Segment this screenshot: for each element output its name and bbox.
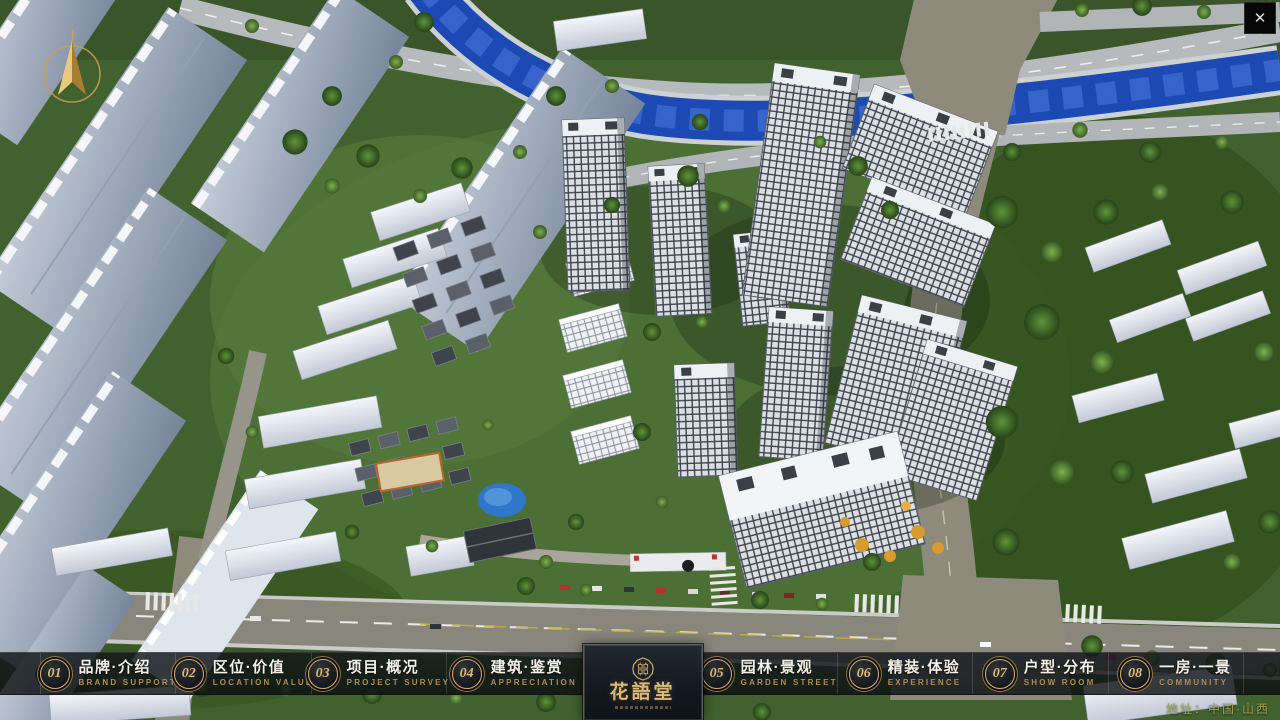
nav-item-room-view[interactable]: 08 一房·一景 COMMUNITY — [1109, 653, 1244, 694]
nav-number-badge: 05 — [702, 659, 732, 689]
nav-item-label: 品牌·介绍 — [79, 660, 152, 677]
nav-item-location-value[interactable]: 02 区位·价值 LOCATION VALUE — [176, 653, 311, 694]
nav-item-sublabel: SHOW ROOM — [1024, 679, 1096, 687]
nav-item-sublabel: BRAND SUPPORT — [79, 679, 177, 687]
brand-logo-panel[interactable]: 花語堂 — [583, 644, 703, 720]
nav-item-label: 精装·体验 — [888, 660, 961, 677]
nav-item-sublabel: GARDEN STREET — [741, 679, 838, 687]
nav-number-badge: 01 — [40, 659, 70, 689]
nav-number-badge: 02 — [174, 659, 204, 689]
compass-north-icon — [36, 28, 108, 108]
nav-item-project-overview[interactable]: 03 项目·概况 PROJECT SURVEY — [312, 653, 447, 694]
nav-number-badge: 07 — [985, 659, 1015, 689]
masterplan-render — [0, 0, 1280, 720]
nav-item-sublabel: PROJECT SURVEY — [347, 679, 451, 687]
nav-item-floorplans[interactable]: 07 户型·分布 SHOW ROOM — [973, 653, 1108, 694]
app-window: ✕ 01 品牌·介绍 BRAND SUPPORT 02 区位·价值 LOCATI… — [0, 0, 1280, 720]
bottom-navbar: 01 品牌·介绍 BRAND SUPPORT 02 区位·价值 LOCATION… — [0, 652, 1280, 695]
nav-item-label: 一房·一景 — [1159, 660, 1232, 677]
brand-seal-icon — [631, 657, 655, 681]
nav-item-sublabel: COMMUNITY — [1159, 679, 1228, 687]
nav-number-badge: 04 — [452, 659, 482, 689]
nav-item-label: 区位·价值 — [213, 660, 286, 677]
close-button[interactable]: ✕ — [1244, 2, 1276, 34]
nav-item-sublabel: APPRECIATION — [491, 679, 577, 687]
nav-item-brand-intro[interactable]: 01 品牌·介绍 BRAND SUPPORT — [41, 653, 176, 694]
nav-number-badge: 06 — [849, 659, 879, 689]
nav-item-label: 园林·景观 — [741, 660, 814, 677]
nav-item-landscape[interactable]: 05 园林·景观 GARDEN STREET — [703, 653, 838, 694]
nav-item-architecture[interactable]: 04 建筑·鉴赏 APPRECIATION — [447, 653, 582, 694]
nav-item-label: 建筑·鉴赏 — [491, 660, 564, 677]
nav-item-sublabel: EXPERIENCE — [888, 679, 962, 687]
project-address: 地址：中国·山西 — [1166, 700, 1270, 717]
brand-logo-title: 花語堂 — [609, 683, 675, 702]
navbar-left-pad — [0, 653, 41, 694]
navbar-right-pad — [1244, 653, 1280, 694]
nav-item-label: 户型·分布 — [1024, 660, 1097, 677]
nav-item-label: 项目·概况 — [347, 660, 420, 677]
close-icon: ✕ — [1254, 9, 1267, 27]
nav-number-badge: 08 — [1120, 659, 1150, 689]
nav-number-badge: 03 — [308, 659, 338, 689]
nav-item-interior-experience[interactable]: 06 精装·体验 EXPERIENCE — [838, 653, 973, 694]
brand-logo-tagline — [615, 706, 671, 709]
nav-item-sublabel: LOCATION VALUE — [213, 679, 314, 687]
